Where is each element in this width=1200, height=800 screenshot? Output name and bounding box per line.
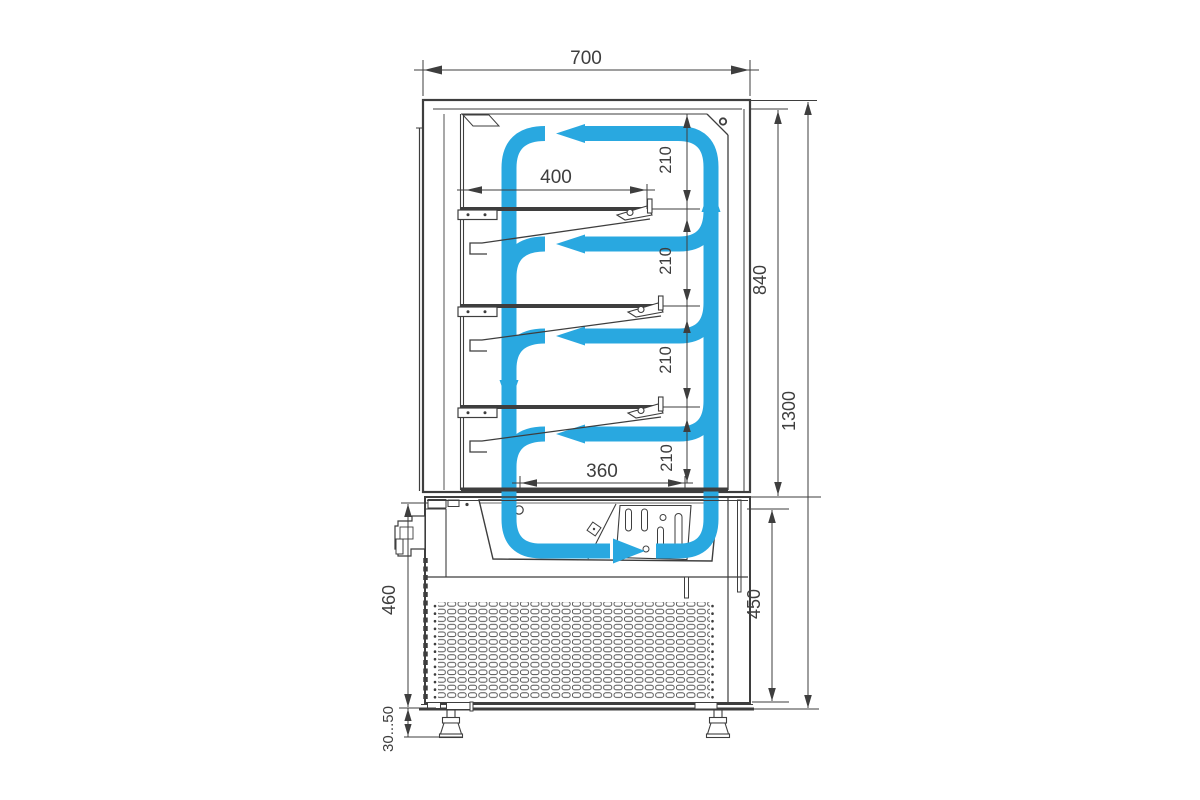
dim-label-450: 450 [744,589,764,619]
display-case-airflow-diagram: 700 400 360 210 210 210 210 840 1300 450… [0,0,1200,800]
technical-drawing-page: 700 400 360 210 210 210 210 840 1300 450… [0,0,1200,800]
adjustable-foot-right [707,710,730,738]
adjustable-foot-left [440,710,463,738]
ventilation-grille [435,602,713,699]
dim-label-30-50: 30...50 [380,706,397,752]
dim-label-360: 360 [586,461,618,482]
dim-label-210-3: 210 [657,346,675,374]
dim-label-1300: 1300 [779,391,799,431]
dim-label-700: 700 [570,48,602,69]
wall-bracket [395,516,425,556]
dim-label-840: 840 [750,265,770,295]
dim-label-460: 460 [379,585,399,615]
dim-label-210-4: 210 [658,444,676,472]
dim-label-210-1: 210 [657,146,675,174]
base-cabinet [395,497,754,738]
drain-pin [685,577,689,598]
dim-label-210-2: 210 [657,247,675,275]
screw-icon [720,118,726,124]
dim-label-400: 400 [540,167,572,188]
dim-display-height [751,109,821,497]
